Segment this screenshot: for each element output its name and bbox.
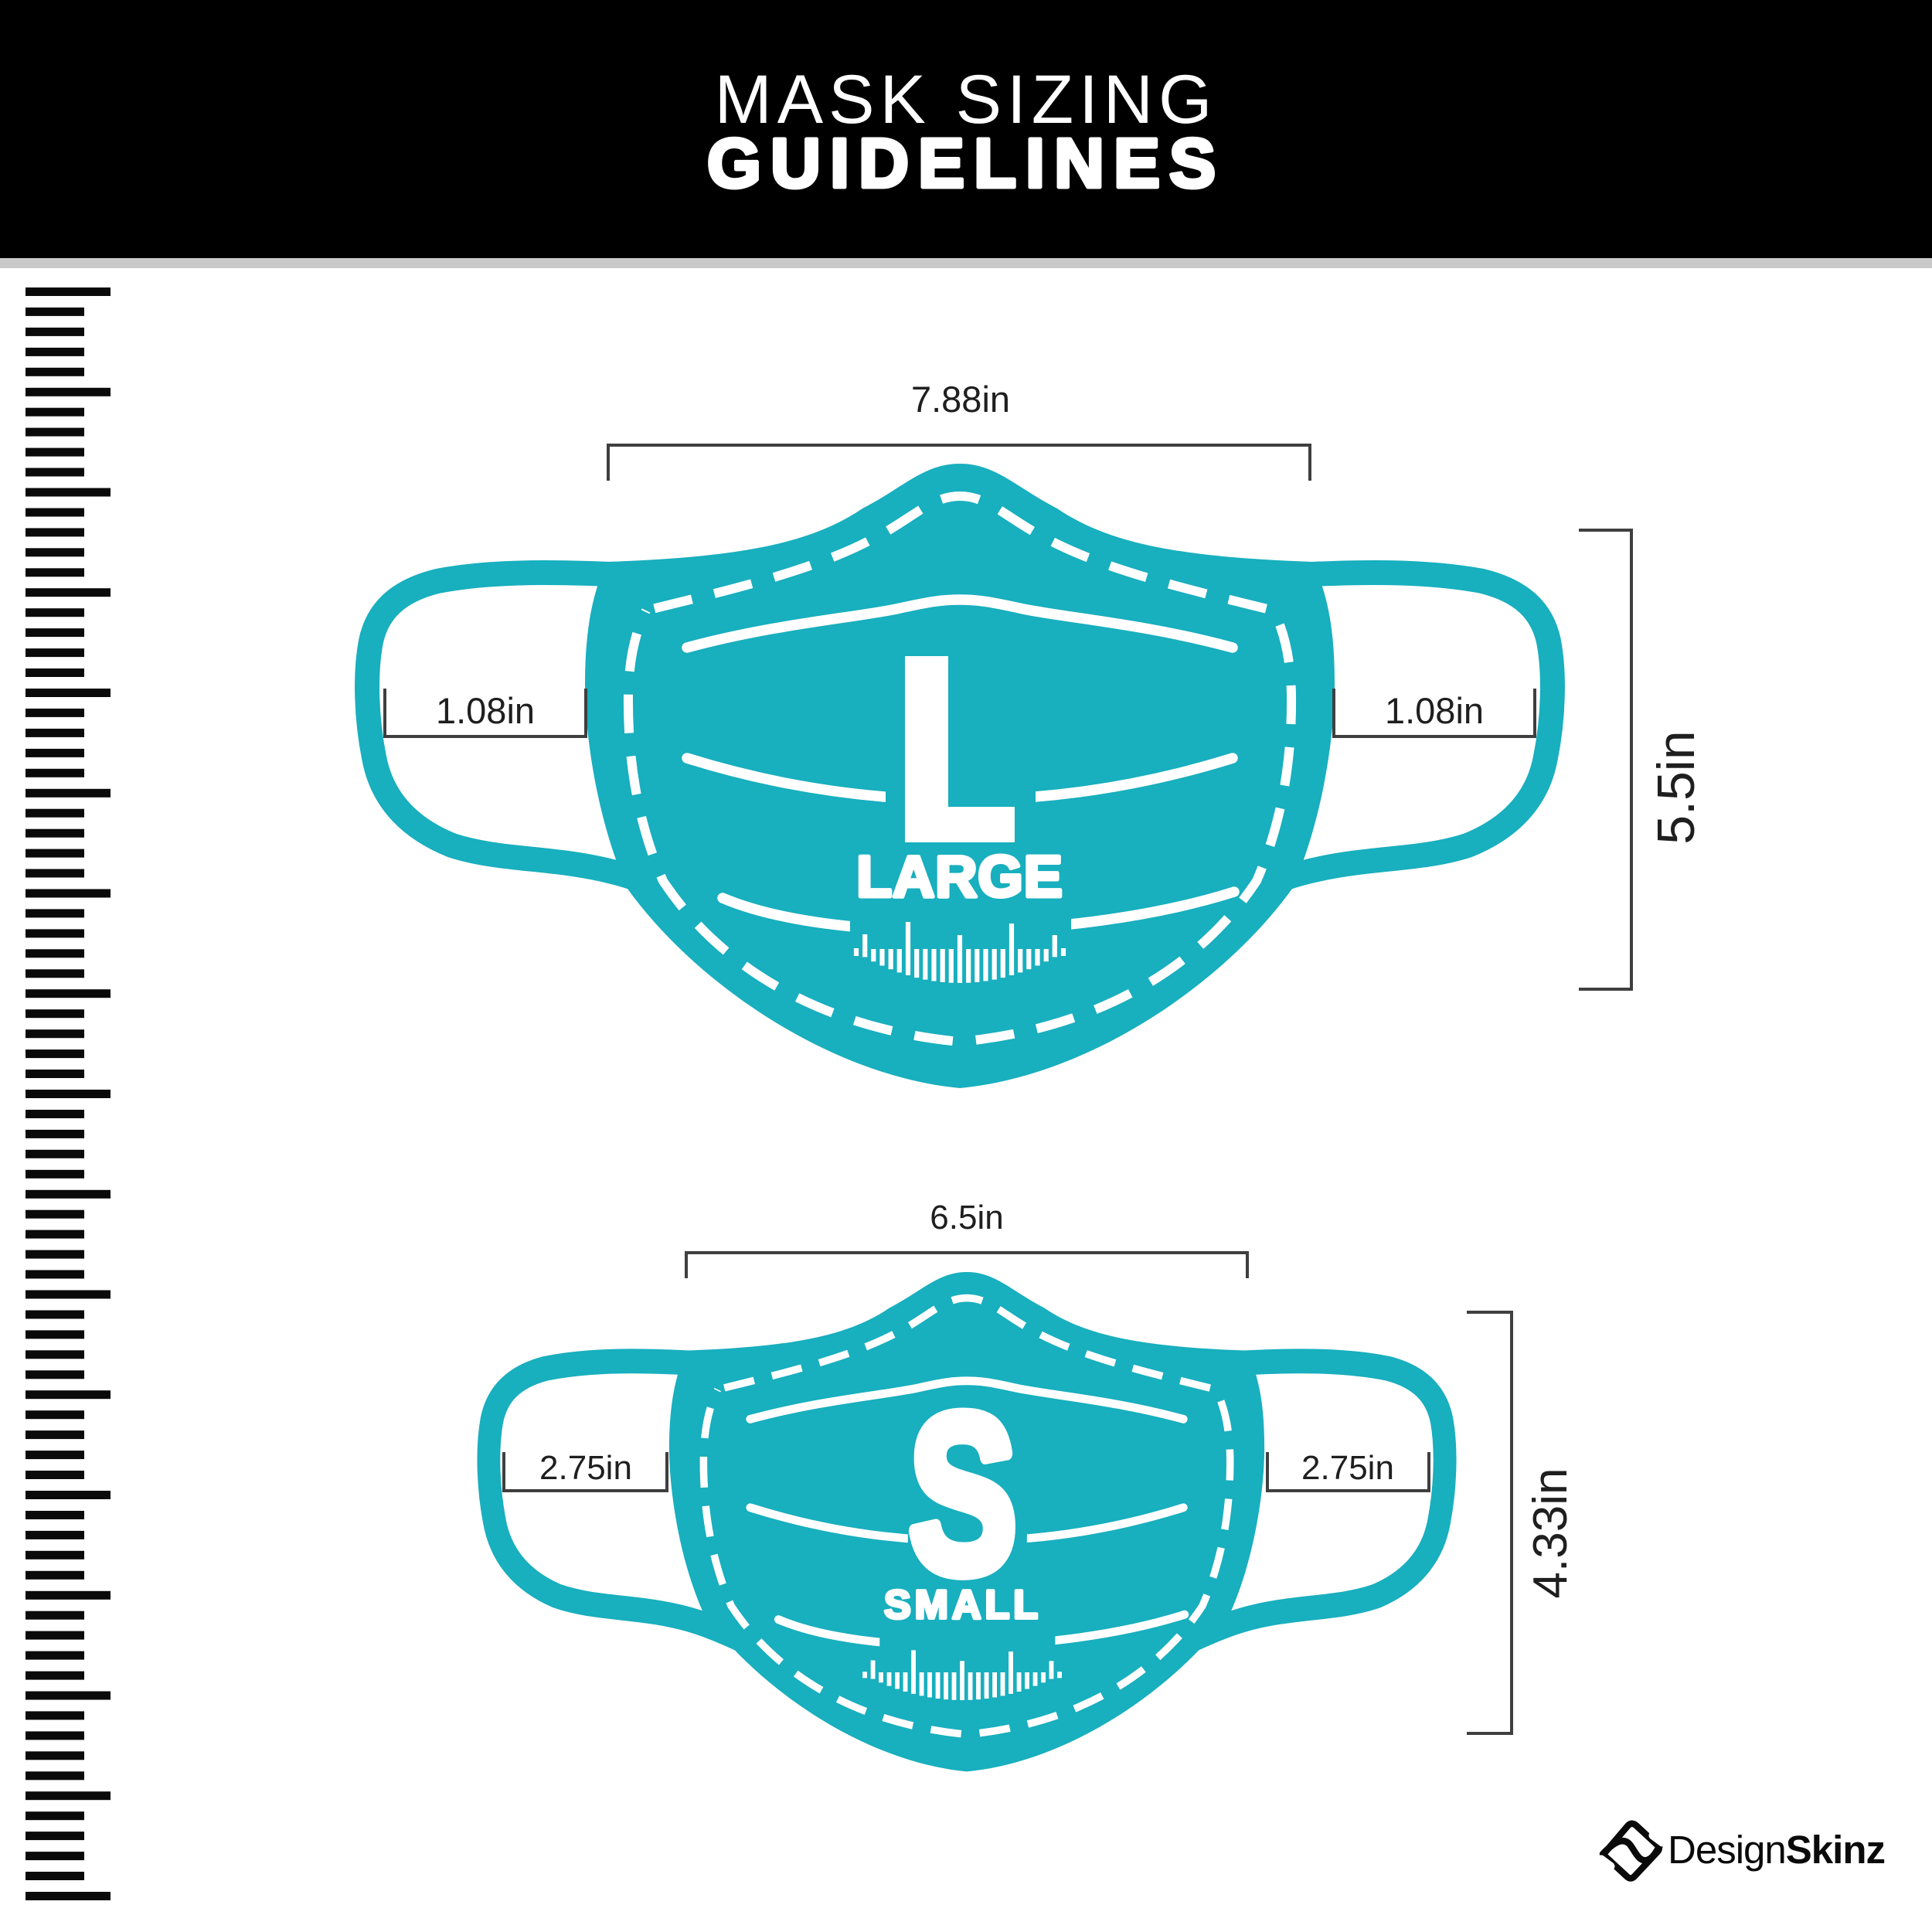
svg-text:5.5in: 5.5in bbox=[1647, 730, 1706, 844]
svg-text:GUIDELINES: GUIDELINES bbox=[707, 125, 1225, 202]
svg-text:1.08in: 1.08in bbox=[1385, 690, 1484, 731]
svg-text:7.88in: 7.88in bbox=[911, 379, 1010, 420]
svg-text:S: S bbox=[909, 1368, 1016, 1619]
svg-text:SMALL: SMALL bbox=[884, 1583, 1042, 1628]
svg-text:LARGE: LARGE bbox=[856, 844, 1063, 909]
svg-text:4.33in: 4.33in bbox=[1524, 1468, 1577, 1599]
svg-text:1.08in: 1.08in bbox=[436, 690, 535, 731]
svg-text:DesignSkinz: DesignSkinz bbox=[1668, 1828, 1885, 1872]
svg-text:2.75in: 2.75in bbox=[539, 1449, 632, 1487]
svg-text:2.75in: 2.75in bbox=[1301, 1449, 1394, 1487]
svg-text:6.5in: 6.5in bbox=[930, 1199, 1003, 1236]
